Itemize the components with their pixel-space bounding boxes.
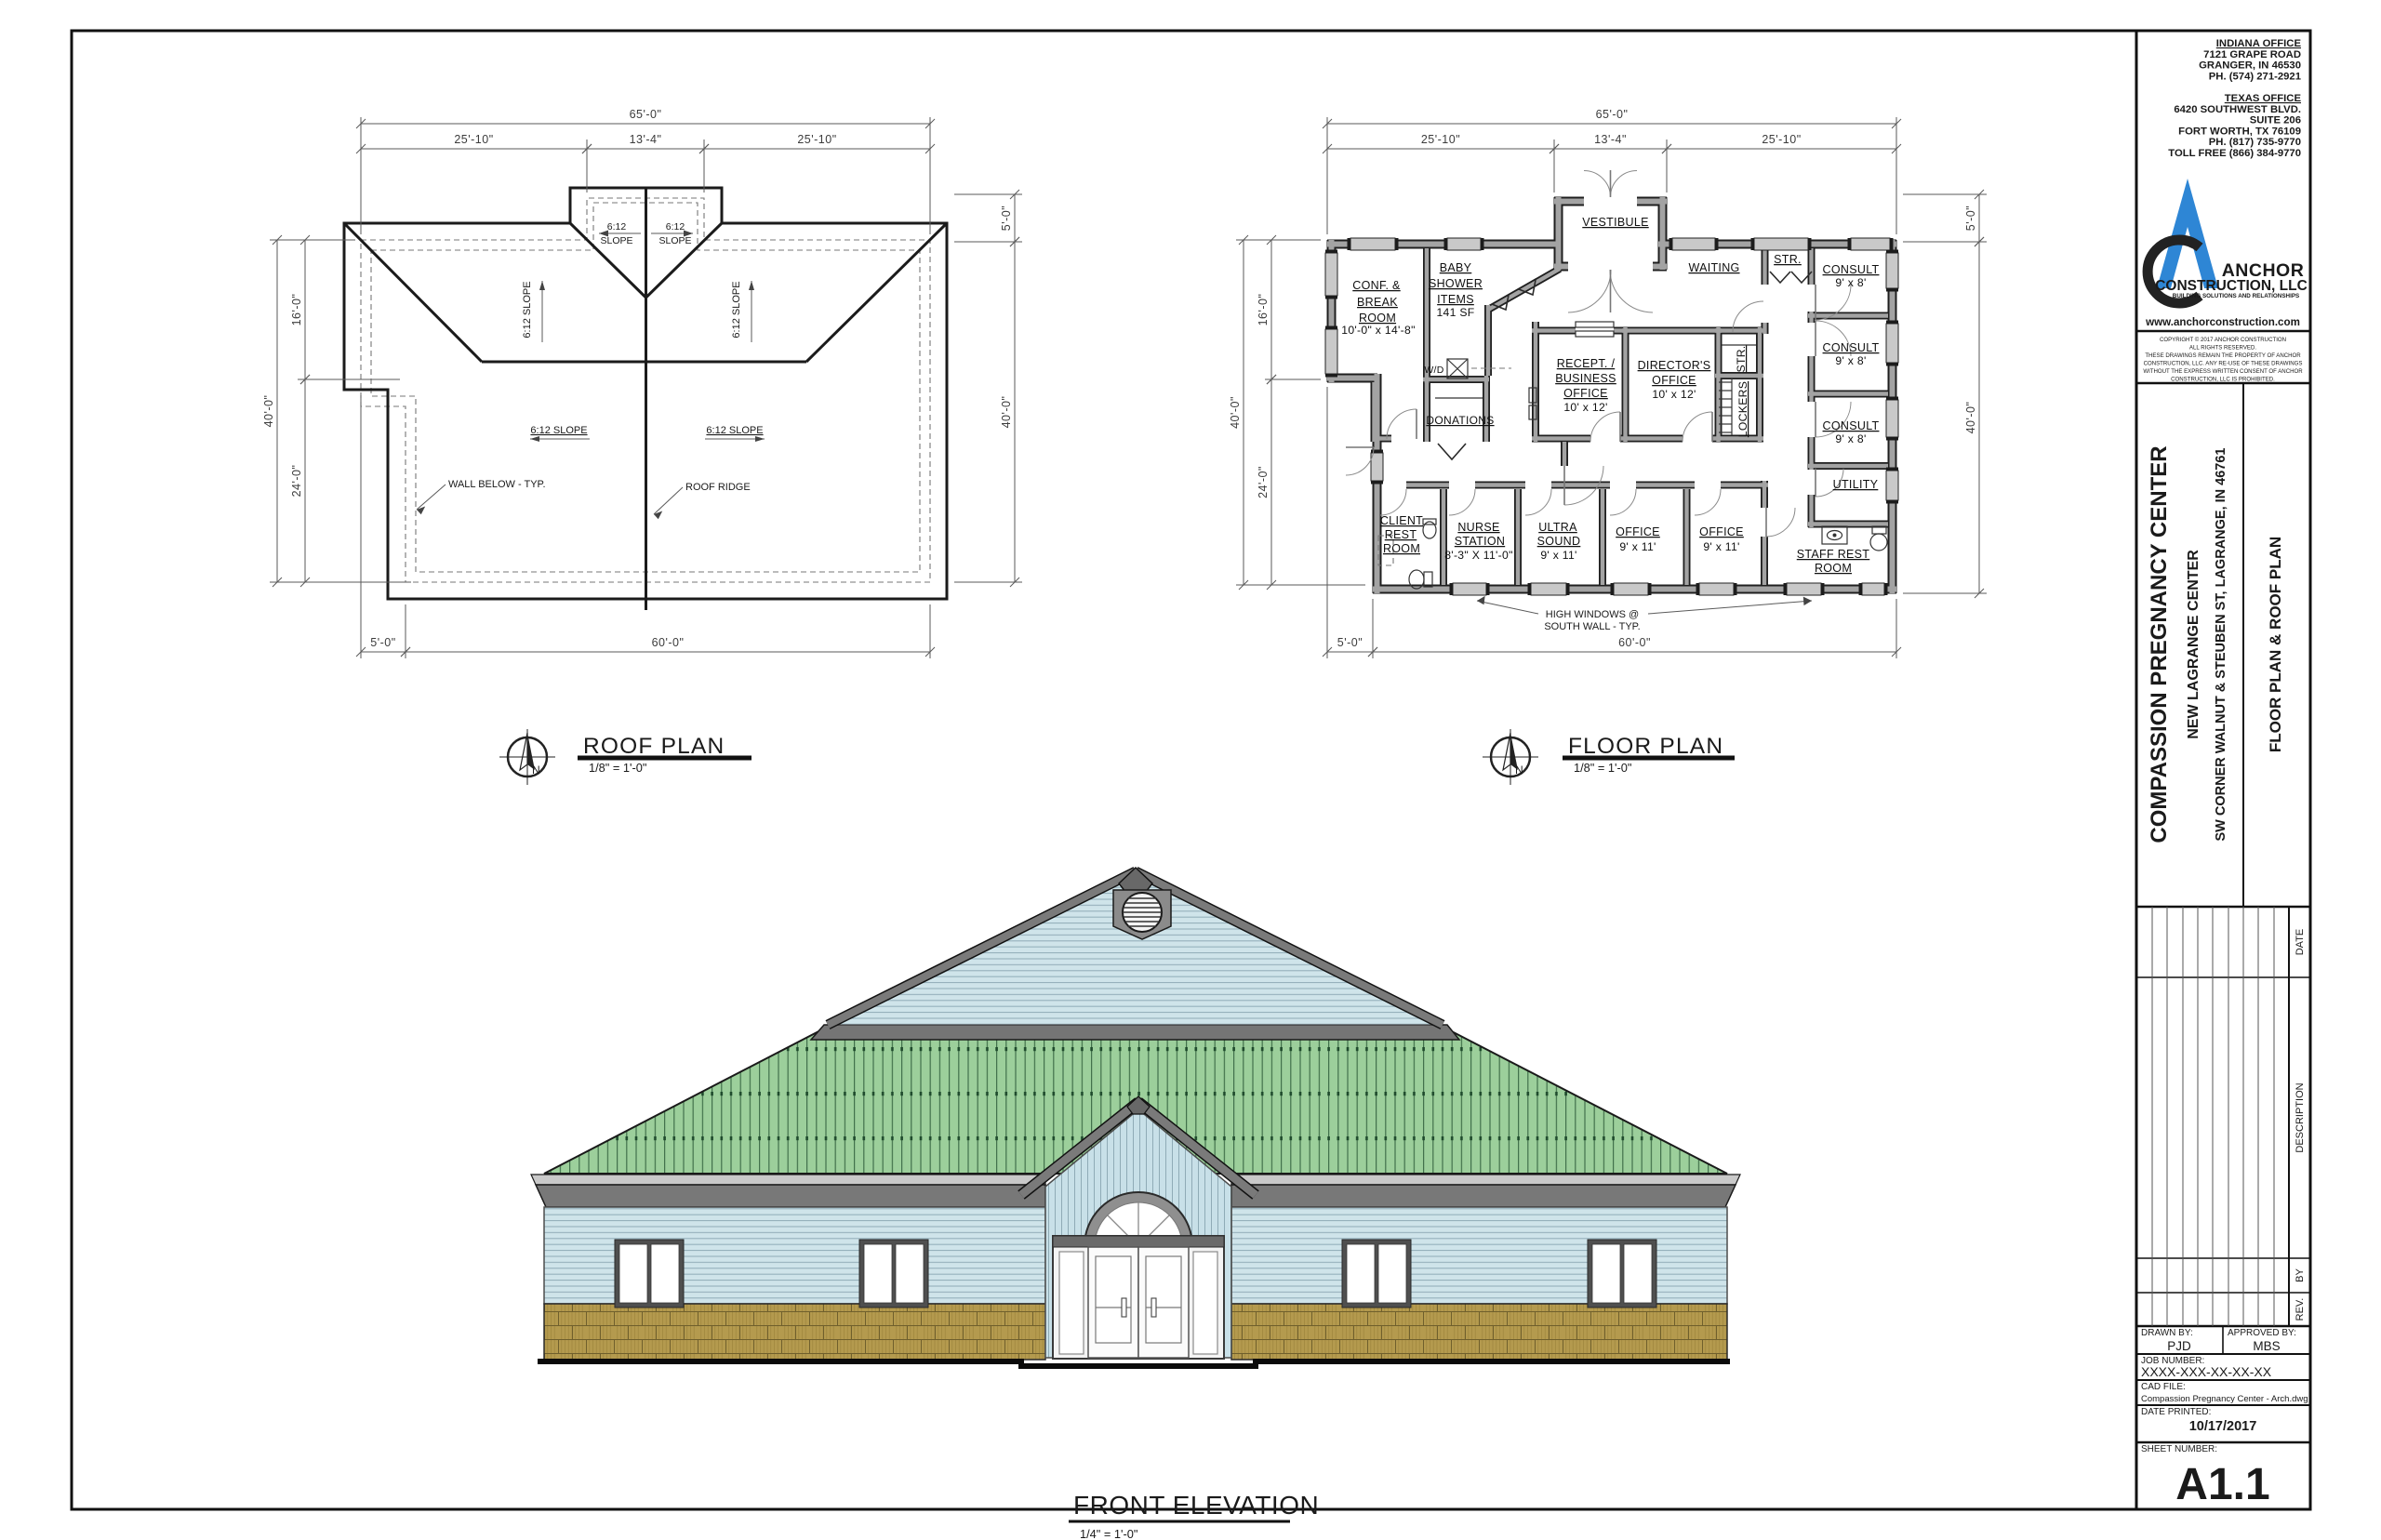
svg-text:CONSTRUCTION, LLC. ANY RE-U: CONSTRUCTION, LLC. ANY RE-USE OF THESE D…: [2144, 361, 2303, 367]
svg-text:40'-0": 40'-0": [262, 395, 275, 428]
svg-text:REV.: REV.: [2295, 1298, 2306, 1321]
svg-text:ROOM: ROOM: [1359, 312, 1396, 325]
svg-text:FLOOR PLAN & ROOF PLAN: FLOOR PLAN & ROOF PLAN: [2267, 537, 2284, 752]
svg-text:25'-10": 25'-10": [454, 133, 493, 146]
svg-text:CONSTRUCTION, LLC: CONSTRUCTION, LLC: [2155, 278, 2308, 294]
svg-text:CONSULT: CONSULT: [1823, 419, 1880, 432]
svg-text:25'-10": 25'-10": [1421, 133, 1460, 146]
svg-text:STATION: STATION: [1455, 535, 1505, 548]
svg-text:1/8" = 1'-0": 1/8" = 1'-0": [1574, 761, 1631, 775]
svg-text:CONSULT: CONSULT: [1823, 263, 1880, 276]
svg-text:VESTIBULE: VESTIBULE: [1582, 216, 1648, 229]
svg-text:6:12: 6:12: [607, 221, 627, 232]
svg-text:6:12 SLOPE: 6:12 SLOPE: [522, 281, 533, 338]
svg-text:1/8" = 1'-0": 1/8" = 1'-0": [589, 761, 646, 775]
svg-text:1/4" = 1'-0": 1/4" = 1'-0": [1080, 1527, 1137, 1540]
svg-text:25'-10": 25'-10": [1762, 133, 1801, 146]
svg-text:65'-0": 65'-0": [630, 108, 662, 121]
svg-text:www.anchorconstruction.com: www.anchorconstruction.com: [2145, 316, 2300, 328]
svg-text:BREAK: BREAK: [1357, 296, 1398, 309]
svg-text:FRONT ELEVATION: FRONT ELEVATION: [1073, 1491, 1319, 1520]
svg-text:8'-3" X 11'-0": 8'-3" X 11'-0": [1444, 549, 1513, 562]
svg-text:OFFICE: OFFICE: [1652, 374, 1696, 387]
svg-text:TOLL FREE (866) 384-9770: TOLL FREE (866) 384-9770: [2168, 148, 2301, 159]
svg-text:UTILITY: UTILITY: [1833, 478, 1879, 491]
svg-text:9' x 8': 9' x 8': [1835, 432, 1866, 445]
svg-text:CLIENT: CLIENT: [1380, 514, 1423, 527]
svg-text:5'-0": 5'-0": [370, 636, 395, 649]
svg-text:9' x 8': 9' x 8': [1835, 354, 1866, 367]
svg-text:9' x 11': 9' x 11': [1703, 540, 1739, 553]
svg-text:ROOF PLAN: ROOF PLAN: [583, 734, 725, 759]
svg-text:CONF. &: CONF. &: [1352, 279, 1401, 292]
svg-text:24'-0": 24'-0": [290, 465, 303, 498]
svg-text:FLOOR PLAN: FLOOR PLAN: [1568, 734, 1723, 759]
svg-text:PH. (574) 271-2921: PH. (574) 271-2921: [2209, 71, 2301, 82]
svg-text:16'-0": 16'-0": [1257, 294, 1270, 326]
svg-text:N: N: [532, 763, 540, 777]
svg-text:BABY: BABY: [1440, 261, 1472, 274]
svg-text:PH. (817) 735-9770: PH. (817) 735-9770: [2209, 137, 2301, 148]
svg-text:DIRECTOR'S: DIRECTOR'S: [1638, 359, 1711, 372]
svg-text:HIGH WINDOWS @: HIGH WINDOWS @: [1546, 609, 1639, 620]
svg-text:SHOWER: SHOWER: [1429, 277, 1483, 290]
svg-text:ROOM: ROOM: [1383, 542, 1420, 555]
svg-text:SOUND: SOUND: [1537, 535, 1581, 548]
svg-text:THESE DRAWINGS REMAIN THE: THESE DRAWINGS REMAIN THE PROPERTY OF AN…: [2145, 352, 2301, 359]
svg-text:10'-0" x 14'-8": 10'-0" x 14'-8": [1341, 324, 1415, 337]
svg-text:A1.1: A1.1: [2175, 1460, 2269, 1509]
svg-text:ROOF RIDGE: ROOF RIDGE: [685, 482, 751, 493]
svg-text:DESCRIPTION: DESCRIPTION: [2295, 1082, 2306, 1152]
svg-text:65'-0": 65'-0": [1596, 108, 1629, 121]
svg-text:60'-0": 60'-0": [1618, 636, 1651, 649]
svg-text:OFFICE: OFFICE: [1699, 525, 1744, 538]
svg-text:13'-4": 13'-4": [1594, 133, 1627, 146]
svg-text:DRAWN BY:: DRAWN BY:: [2141, 1328, 2193, 1338]
svg-text:6:12 SLOPE: 6:12 SLOPE: [731, 281, 742, 338]
svg-text:ROOM: ROOM: [1815, 562, 1852, 575]
svg-text:Compassion Pregnancy Center: Compassion Pregnancy Center - Arch.dwg: [2141, 1394, 2308, 1404]
svg-text:9' x 11': 9' x 11': [1540, 549, 1576, 562]
svg-text:CONSULT: CONSULT: [1823, 341, 1880, 354]
svg-text:GRANGER, IN 46530: GRANGER, IN 46530: [2199, 60, 2301, 72]
svg-text:ITEMS: ITEMS: [1437, 293, 1474, 306]
svg-text:BUILDING SOLUTIONS AND RELATIO: BUILDING SOLUTIONS AND RELATIONSHIPS: [2173, 293, 2299, 299]
svg-text:MBS: MBS: [2253, 1339, 2280, 1353]
svg-text:INDIANA OFFICE: INDIANA OFFICE: [2216, 38, 2302, 49]
svg-text:CAD FILE:: CAD FILE:: [2141, 1382, 2186, 1392]
svg-text:6:12 SLOPE: 6:12 SLOPE: [530, 425, 587, 436]
svg-text:25'-10": 25'-10": [797, 133, 836, 146]
svg-text:COPYRIGHT © 2017 ANCHOR CON: COPYRIGHT © 2017 ANCHOR CONSTRUCTION: [2160, 337, 2286, 343]
svg-text:6:12: 6:12: [666, 221, 685, 232]
svg-text:9' x 8': 9' x 8': [1835, 276, 1866, 289]
svg-text:OFFICE: OFFICE: [1563, 387, 1608, 400]
svg-text:OFFICE: OFFICE: [1616, 525, 1660, 538]
svg-text:40'-0": 40'-0": [1229, 396, 1242, 429]
svg-text:STR.: STR.: [1774, 253, 1802, 266]
svg-text:10/17/2017: 10/17/2017: [2189, 1419, 2257, 1434]
svg-text:APPROVED BY:: APPROVED BY:: [2228, 1328, 2296, 1338]
svg-text:60'-0": 60'-0": [652, 636, 685, 649]
svg-text:TEXAS OFFICE: TEXAS OFFICE: [2225, 93, 2302, 104]
svg-text:13'-4": 13'-4": [630, 133, 662, 146]
svg-text:W/D: W/D: [1424, 365, 1443, 376]
svg-text:10' x 12': 10' x 12': [1652, 388, 1696, 401]
svg-text:DONATIONS: DONATIONS: [1426, 414, 1494, 427]
svg-text:CONSTRUCTION, LLC IS PROHIB: CONSTRUCTION, LLC IS PROHIBITED.: [2171, 377, 2275, 383]
svg-text:FORT WORTH, TX 76109: FORT WORTH, TX 76109: [2178, 126, 2301, 137]
svg-text:SLOPE: SLOPE: [658, 235, 691, 246]
svg-text:RECEPT. /: RECEPT. /: [1557, 357, 1616, 370]
svg-text:6:12 SLOPE: 6:12 SLOPE: [706, 425, 763, 436]
svg-text:SUITE 206: SUITE 206: [2250, 115, 2301, 126]
svg-text:6420 SOUTHWEST BLVD.: 6420 SOUTHWEST BLVD.: [2174, 104, 2301, 115]
svg-text:WAITING: WAITING: [1688, 261, 1739, 274]
svg-text:REST: REST: [1385, 528, 1417, 541]
svg-text:5'-0": 5'-0": [1337, 636, 1363, 649]
svg-text:LOCKERS: LOCKERS: [1736, 381, 1749, 437]
svg-text:5'-0": 5'-0": [1964, 206, 1977, 231]
svg-text:SHEET NUMBER:: SHEET NUMBER:: [2141, 1444, 2217, 1454]
svg-text:16'-0": 16'-0": [290, 294, 303, 326]
svg-text:40'-0": 40'-0": [1964, 402, 1977, 434]
svg-text:SW CORNER WALNUT & STEUBEN ST,: SW CORNER WALNUT & STEUBEN ST, LAGRANGE,…: [2214, 448, 2228, 842]
svg-text:WITHOUT THE EXPRESS WRITTEN: WITHOUT THE EXPRESS WRITTEN CONSENT OF A…: [2143, 368, 2303, 375]
svg-text:STR.: STR.: [1735, 346, 1748, 373]
svg-text:STAFF REST: STAFF REST: [1797, 548, 1870, 561]
svg-text:24'-0": 24'-0": [1257, 466, 1270, 498]
svg-text:BY: BY: [2295, 1268, 2306, 1282]
svg-text:141 SF: 141 SF: [1436, 306, 1474, 319]
svg-text:WALL BELOW - TYP.: WALL BELOW - TYP.: [448, 479, 546, 490]
svg-text:SLOPE: SLOPE: [600, 235, 632, 246]
svg-text:N: N: [1515, 763, 1523, 777]
svg-text:ALL RIGHTS RESERVED.: ALL RIGHTS RESERVED.: [2189, 345, 2256, 352]
svg-text:COMPASSION PREGNANCY CENTER: COMPASSION PREGNANCY CENTER: [2147, 445, 2172, 843]
svg-text:DATE PRINTED:: DATE PRINTED:: [2141, 1407, 2211, 1417]
svg-text:XXXX-XXX-XX-XX-XX: XXXX-XXX-XX-XX-XX: [2141, 1364, 2272, 1379]
svg-text:BUSINESS: BUSINESS: [1555, 372, 1616, 385]
svg-text:40'-0": 40'-0": [1000, 396, 1013, 429]
svg-text:NURSE: NURSE: [1457, 521, 1499, 534]
svg-text:10' x 12': 10' x 12': [1563, 401, 1607, 414]
svg-text:PJD: PJD: [2167, 1339, 2191, 1353]
svg-text:SOUTH WALL - TYP.: SOUTH WALL - TYP.: [1544, 621, 1640, 632]
svg-text:9' x 11': 9' x 11': [1619, 540, 1656, 553]
svg-text:7121 GRAPE ROAD: 7121 GRAPE ROAD: [2203, 49, 2301, 60]
svg-text:5'-0": 5'-0": [1000, 206, 1013, 231]
svg-text:ULTRA: ULTRA: [1538, 521, 1577, 534]
svg-text:NEW LAGRANGE CENTER: NEW LAGRANGE CENTER: [2186, 550, 2201, 739]
svg-text:DATE: DATE: [2295, 929, 2306, 956]
